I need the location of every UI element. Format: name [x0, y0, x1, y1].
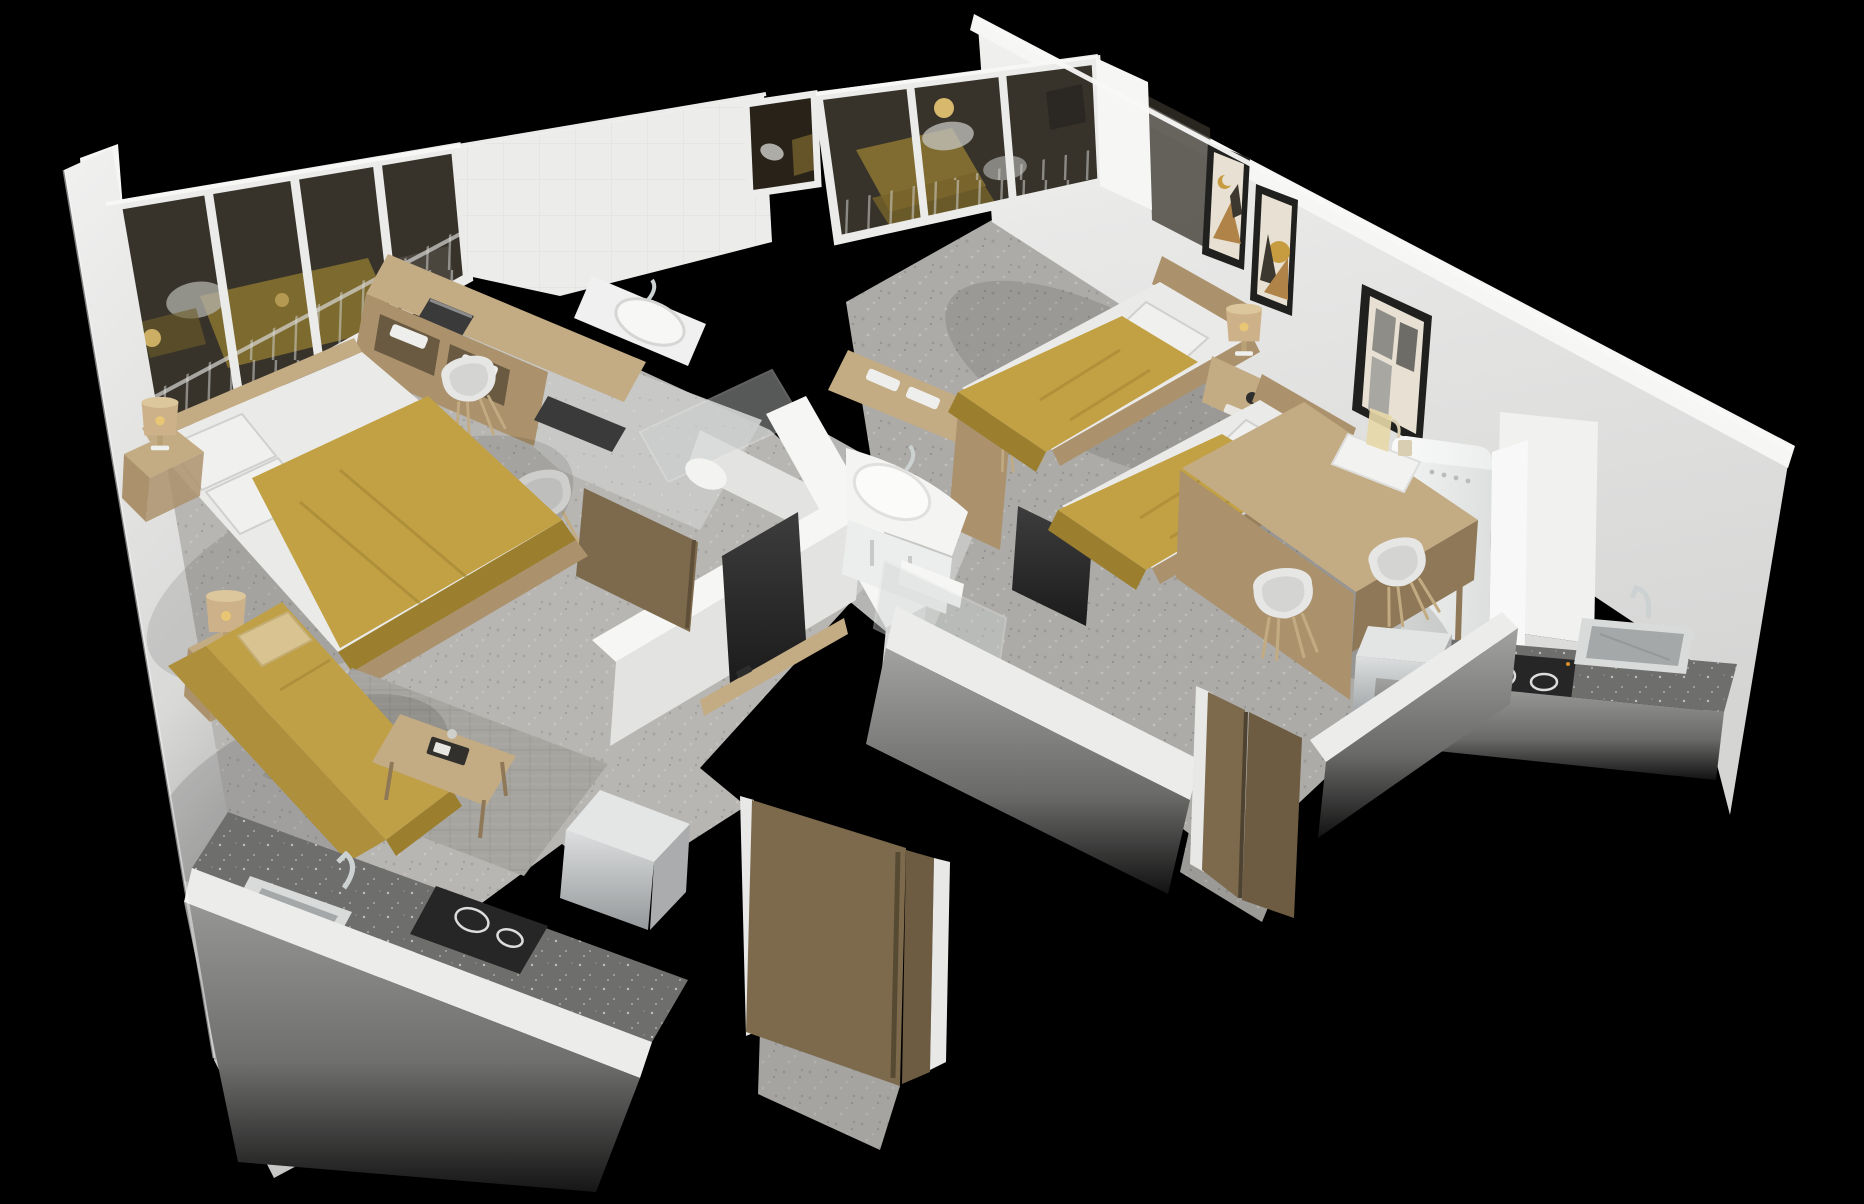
door-right-leaf-2 [1242, 712, 1302, 918]
door-right-leaf-1 [1202, 692, 1245, 898]
reflected-lamp-glow [934, 98, 954, 118]
wall-art-frame-2 [1250, 184, 1298, 316]
render-stage [0, 0, 1864, 1204]
art-block-2 [1396, 322, 1418, 372]
table-cup [447, 729, 457, 739]
door-left-leaf-2 [902, 850, 934, 1084]
table-leg [1458, 576, 1460, 640]
floorplan-svg [0, 0, 1864, 1204]
window-reflection-bed [792, 134, 814, 176]
cooktop-indicator [1566, 662, 1570, 666]
small-window [746, 94, 818, 194]
reflected-lamp-glow-2 [275, 293, 289, 307]
pitcher [1366, 408, 1392, 452]
reflected-art [1046, 84, 1086, 130]
corner-column [1096, 58, 1152, 210]
cup [1398, 440, 1412, 456]
